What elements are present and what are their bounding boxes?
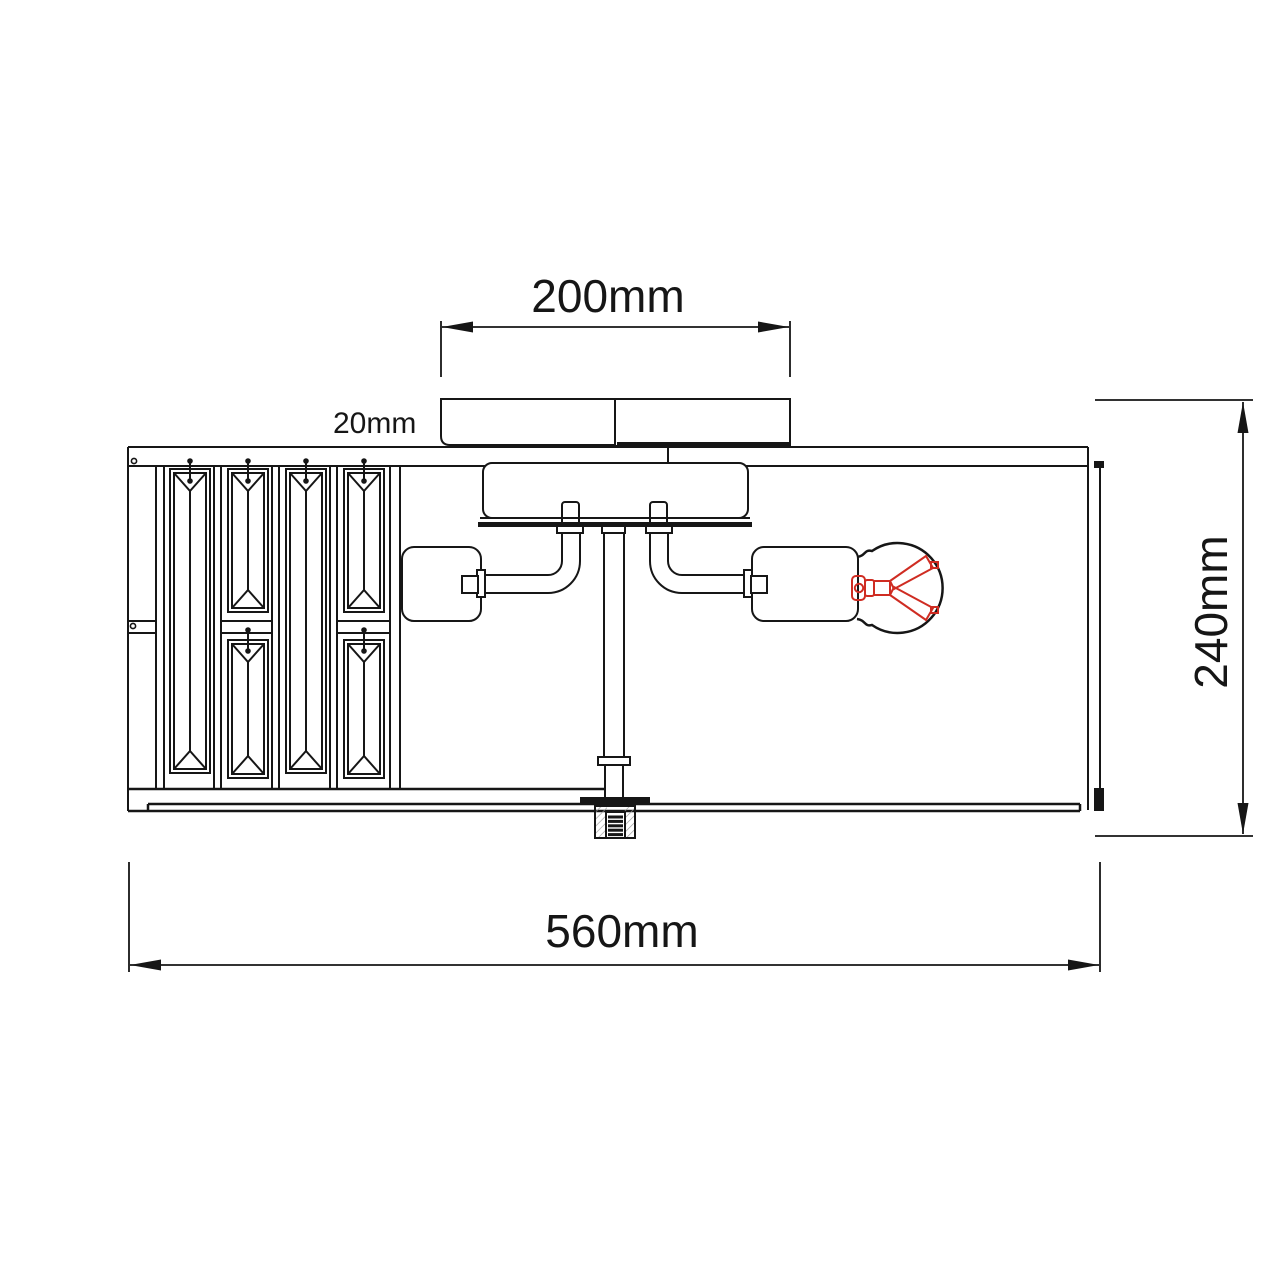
bulb-glass	[857, 543, 943, 633]
arrow-up-icon	[1238, 402, 1249, 433]
screw-hole-icon	[130, 623, 135, 628]
dimension-fixture-width: 560mm	[129, 862, 1100, 972]
collar-left	[557, 526, 583, 533]
dimension-canopy-width: 200mm	[441, 270, 790, 377]
dim-label-canopy-width: 200mm	[531, 270, 684, 322]
dim-label-fixture-height: 240mm	[1185, 535, 1237, 688]
crystal-short	[344, 469, 384, 612]
ceiling-light-technical-drawing: 200mm 20mm 240mm 560mm	[0, 0, 1280, 1280]
crystal-short	[228, 640, 268, 778]
stem-collar-lower	[598, 757, 630, 765]
crystal-long	[286, 469, 326, 773]
crystal-panels	[170, 458, 384, 778]
center-stem	[580, 533, 650, 838]
screw-hole-icon	[131, 458, 136, 463]
canopy-right-half	[615, 399, 790, 446]
arrow-down-icon	[1238, 803, 1249, 834]
stem-base-plate	[580, 797, 650, 804]
ceiling-canopy	[441, 399, 790, 463]
stem-tube-upper	[604, 533, 624, 757]
arm-right	[650, 533, 745, 593]
stem-collar-top	[602, 526, 625, 533]
right-corner-block-bottom	[1094, 788, 1104, 811]
arm-left	[484, 533, 580, 593]
dim-label-canopy-height: 20mm	[333, 407, 416, 440]
stem-tube-lower	[605, 765, 623, 797]
dim-label-fixture-width: 560mm	[545, 905, 698, 957]
socket-right	[751, 576, 767, 593]
right-corner-block-top	[1094, 461, 1104, 468]
socket-left	[462, 576, 478, 593]
center-hub-assembly	[462, 463, 767, 597]
crystal-long	[170, 469, 210, 773]
dimension-fixture-height: 240mm	[1095, 400, 1253, 836]
drawing-canvas: 200mm 20mm 240mm 560mm	[0, 0, 1280, 1280]
crystal-short	[228, 469, 268, 612]
arrow-right-icon	[1068, 960, 1099, 971]
canopy-left-half	[441, 399, 615, 445]
hub-body	[483, 463, 748, 518]
crystal-short	[344, 640, 384, 778]
arrow-right-icon	[758, 322, 789, 333]
arrow-left-icon	[442, 322, 473, 333]
collar-right	[646, 526, 672, 533]
arrow-left-icon	[130, 960, 161, 971]
extension-lines-200mm	[441, 321, 790, 377]
mid-rails	[128, 621, 390, 633]
